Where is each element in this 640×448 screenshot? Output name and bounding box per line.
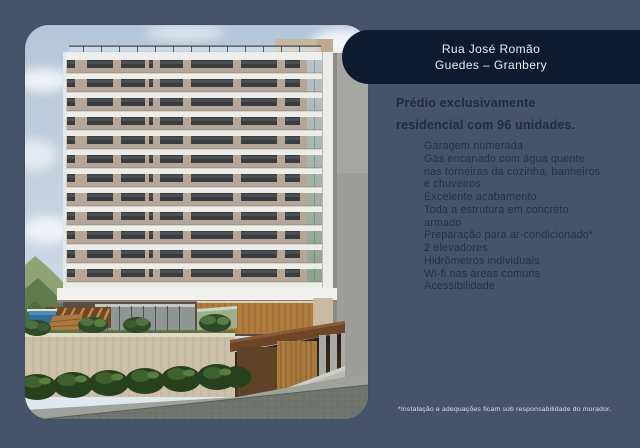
address-banner: Rua José Romão Guedes – Granbery: [342, 30, 640, 84]
feature-line: Garagem numerada: [424, 140, 634, 153]
feature-line: Wi-fi nas áreas comuns: [424, 268, 634, 281]
feature-line: Acessibilidade: [424, 280, 634, 293]
footnote: *Instalação e adequações ficam sob respo…: [398, 406, 611, 413]
feature-line: nas torneiras da cozinha, banheiros: [424, 166, 634, 179]
feature-line: armado: [424, 217, 634, 230]
feature-line: Excelente acabamento: [424, 191, 634, 204]
feature-line: e chuveiros: [424, 178, 634, 191]
headline: Prédio exclusivamente residencial com 96…: [396, 93, 624, 136]
feature-line: Gás encanado com água quente: [424, 153, 634, 166]
slide-canvas: { "header": { "line1": "Rua José Romão",…: [0, 0, 640, 448]
address-line-2: Guedes – Granbery: [435, 57, 547, 73]
headline-line-2: residencial com 96 unidades.: [396, 115, 624, 137]
tower: [57, 46, 337, 303]
building-rendering-image: [25, 25, 368, 419]
address-line-1: Rua José Romão: [442, 41, 540, 57]
headline-line-1: Prédio exclusivamente: [396, 93, 624, 115]
feature-line: Preparação para ar-condicionado*: [424, 229, 634, 242]
feature-line: 2 elevadores: [424, 242, 634, 255]
feature-line: Toda a estrutura em concreto: [424, 204, 634, 217]
feature-list: Garagem numerada Gás encanado com água q…: [424, 140, 634, 293]
feature-line: Hidrômetros individuais: [424, 255, 634, 268]
building-rendering-svg: [25, 25, 368, 419]
